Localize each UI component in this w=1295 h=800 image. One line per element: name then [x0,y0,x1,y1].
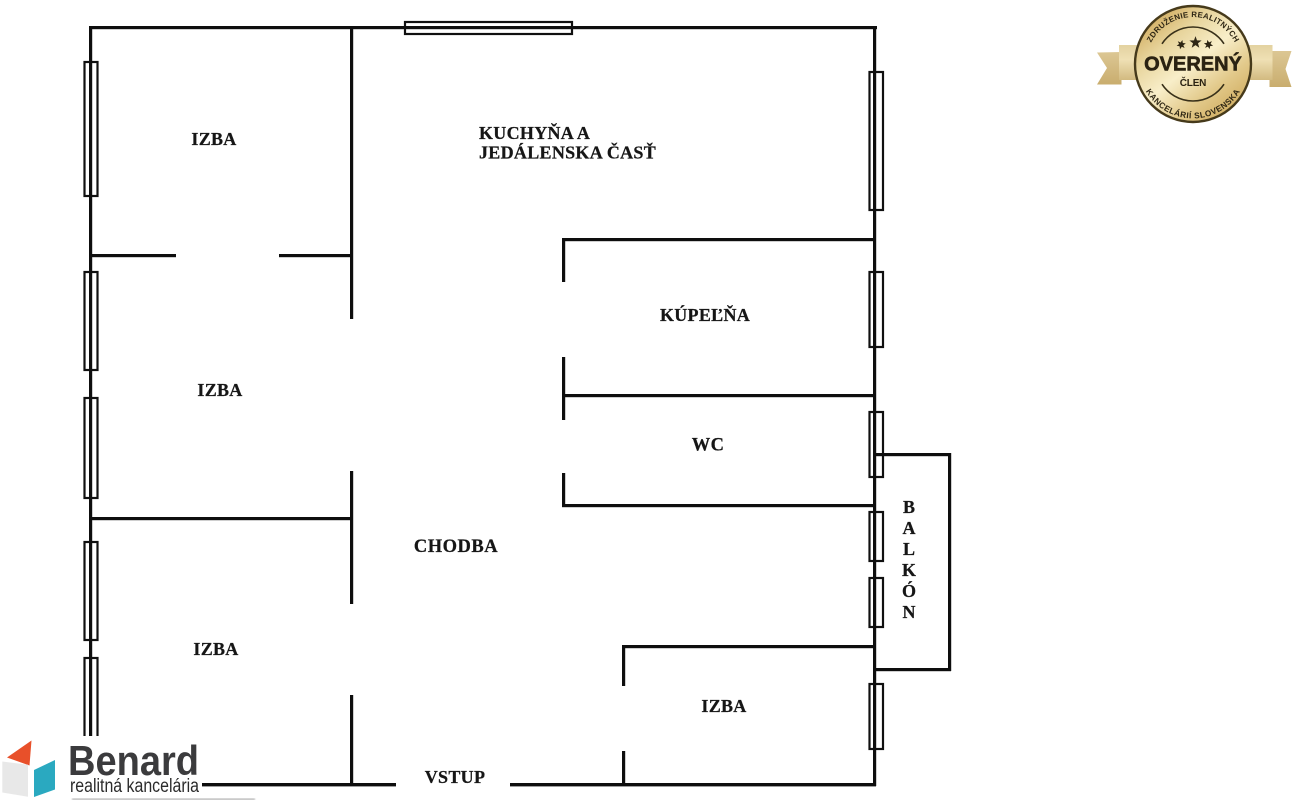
svg-text:IZBA: IZBA [191,129,236,149]
svg-text:JEDÁLENSKA ČASŤ: JEDÁLENSKA ČASŤ [479,142,656,163]
svg-text:IZBA: IZBA [701,696,746,716]
svg-text:CHODBA: CHODBA [414,537,498,557]
svg-text:B: B [903,497,915,517]
svg-text:OVERENÝ: OVERENÝ [1144,52,1242,76]
svg-text:ČLEN: ČLEN [1180,76,1206,89]
svg-text:N: N [903,602,916,622]
svg-text:KUCHYŇA A: KUCHYŇA A [479,122,590,143]
svg-text:realitná kancelária: realitná kancelária [70,776,199,797]
svg-text:K: K [902,560,916,580]
svg-text:KÚPEĽŇA: KÚPEĽŇA [660,304,750,325]
svg-text:Ó: Ó [902,580,916,601]
svg-text:WC: WC [692,436,724,456]
svg-text:VSTUP: VSTUP [425,767,486,787]
svg-text:A: A [903,518,916,538]
svg-text:IZBA: IZBA [197,380,242,400]
svg-text:IZBA: IZBA [193,639,238,659]
svg-text:L: L [903,539,915,559]
